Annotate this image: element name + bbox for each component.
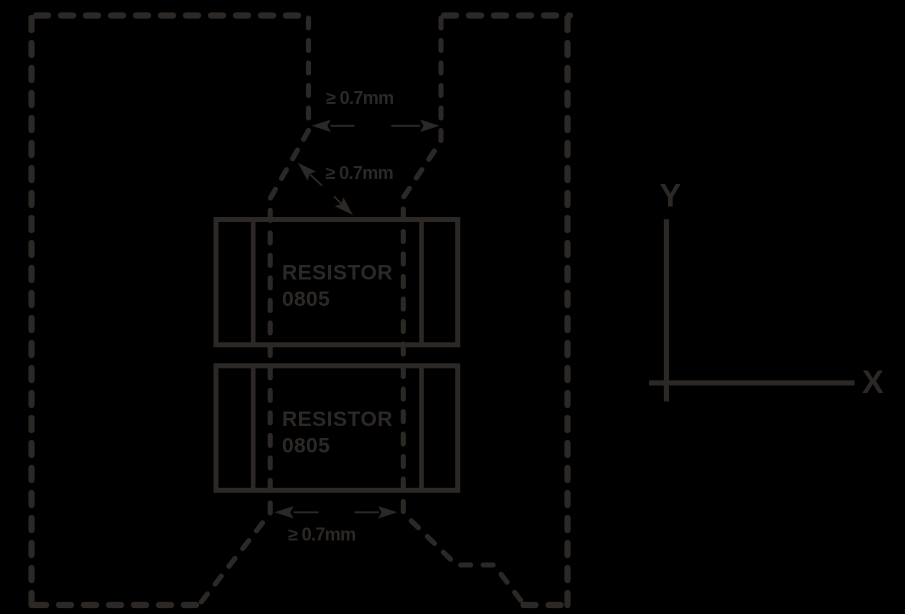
svg-text:≥ 0.7mm: ≥ 0.7mm bbox=[326, 163, 394, 183]
svg-text:≥ 0.7mm: ≥ 0.7mm bbox=[288, 525, 356, 545]
svg-text:0805: 0805 bbox=[282, 288, 330, 311]
svg-text:RESISTOR: RESISTOR bbox=[282, 408, 393, 431]
svg-text:0805: 0805 bbox=[282, 434, 330, 457]
svg-text:Y: Y bbox=[660, 178, 682, 214]
svg-text:X: X bbox=[862, 364, 884, 400]
svg-text:≥ 0.7mm: ≥ 0.7mm bbox=[326, 88, 394, 108]
svg-text:RESISTOR: RESISTOR bbox=[282, 262, 393, 285]
